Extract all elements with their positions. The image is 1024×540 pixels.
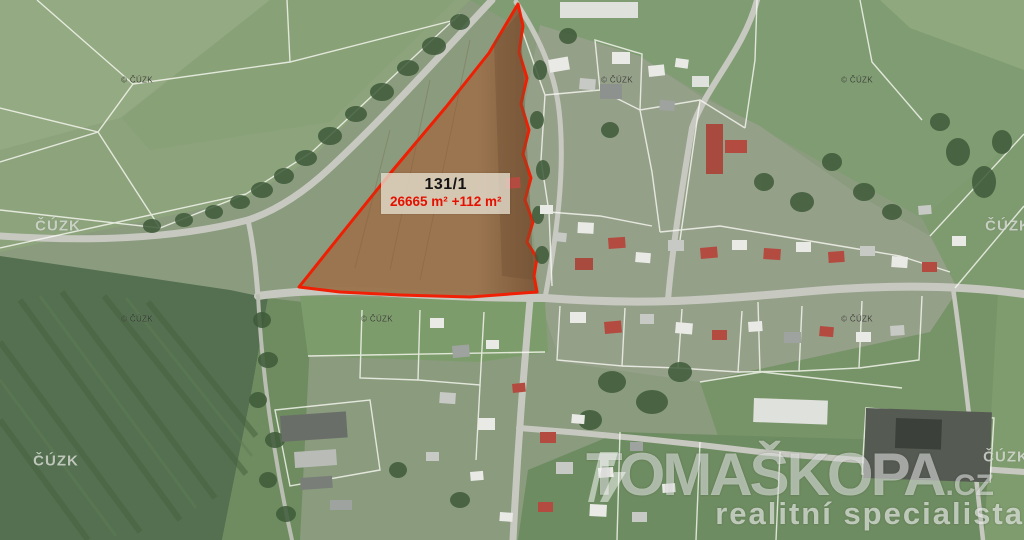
parcel-label: 131/1 26665 m² +112 m² <box>381 173 510 214</box>
aerial-cadastral-map: 131/1 26665 m² +112 m² © ČÚZK © ČÚZK © Č… <box>0 0 1024 540</box>
cuzk-copyright-small: © ČÚZK <box>841 315 873 324</box>
cuzk-watermark-large: ČÚZK <box>33 453 79 470</box>
parcel-number: 131/1 <box>390 176 501 194</box>
cuzk-watermark-large: ČÚZK <box>985 218 1024 235</box>
brand-watermark-row: TOMAŠKOPA .CZ <box>586 448 1024 502</box>
parcel-area: 26665 m² +112 m² <box>390 194 501 210</box>
brand-logo-icon <box>586 448 626 502</box>
cuzk-copyright-small: © ČÚZK <box>601 76 633 85</box>
cuzk-watermark-large: ČÚZK <box>35 218 81 235</box>
parcel-area-value: 26665 m² <box>390 194 448 209</box>
cuzk-copyright-small: © ČÚZK <box>121 315 153 324</box>
cuzk-copyright-small: © ČÚZK <box>361 315 393 324</box>
brand-name: TOMAŠKOPA <box>586 448 943 502</box>
cuzk-copyright-small: © ČÚZK <box>841 76 873 85</box>
parcel-area-delta: +112 m² <box>452 194 502 209</box>
cuzk-copyright-small: © ČÚZK <box>121 76 153 85</box>
brand-watermark: TOMAŠKOPA .CZ realitní specialista <box>586 448 1024 532</box>
